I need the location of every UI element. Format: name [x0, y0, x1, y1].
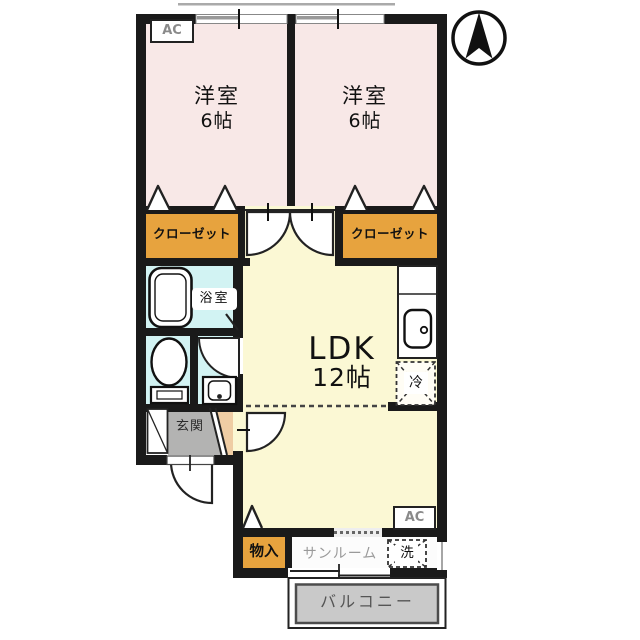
floor-plan-canvas: AC 洋室 6帖 洋室 6帖 クローゼット クローゼット 浴室 LDK 12帖 … — [0, 0, 640, 640]
ldk-bottom-window-icon — [334, 528, 382, 537]
eave-line — [178, 3, 395, 6]
balcony-label: バルコニー — [310, 593, 425, 611]
closet2-label: クローゼット — [343, 227, 437, 241]
bedroom1-name: 洋室 — [157, 84, 277, 108]
entrance-door-arc — [171, 462, 212, 503]
washer-label: 洗 — [394, 546, 420, 562]
bedroom2-size: 6帖 — [305, 111, 425, 133]
hall-opening — [233, 412, 243, 451]
storage-label: 物入 — [243, 544, 285, 561]
sunroom-label: サンルーム — [292, 546, 388, 562]
ldk-size: 12帖 — [280, 364, 404, 393]
bedroom2-name: 洋室 — [305, 84, 425, 108]
toilet-icon — [151, 339, 188, 404]
fridge-label: 冷 — [403, 375, 429, 391]
closet1-label: クローゼット — [146, 227, 238, 241]
ac-unit-bottom-label: AC — [393, 506, 436, 530]
bathtub-icon — [150, 268, 192, 327]
bedroom1-size: 6帖 — [157, 111, 277, 133]
north-arrow-icon — [453, 12, 505, 64]
ac-unit-top-label: AC — [150, 19, 194, 43]
shoe-cabinet-icon — [148, 409, 168, 453]
faucet-icon — [421, 327, 427, 333]
sunroom-side-window-icon — [437, 542, 447, 570]
entrance-label: 玄関 — [168, 420, 212, 435]
bathroom-label: 浴室 — [192, 288, 237, 310]
washbasin-icon — [203, 377, 236, 404]
